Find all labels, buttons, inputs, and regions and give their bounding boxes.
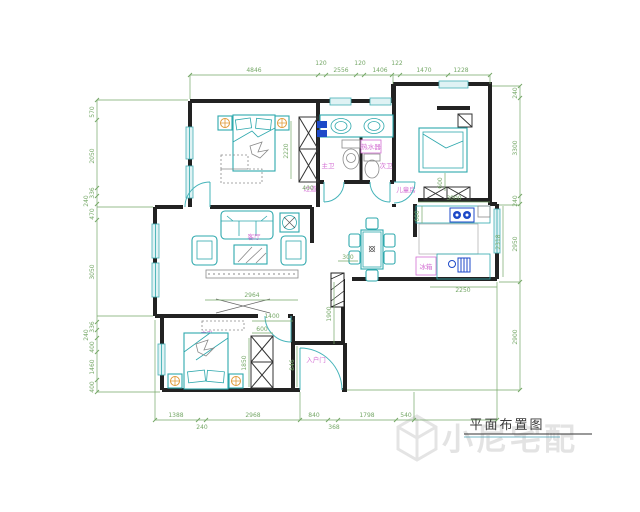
dim: 2964 — [244, 292, 259, 299]
entry-door-label: 入户门 — [306, 355, 326, 364]
dim: 240 — [512, 87, 519, 99]
second-bath-label: 次卫 — [380, 161, 394, 170]
sink — [449, 258, 471, 272]
dim: 1406 — [372, 67, 387, 74]
water-heater-label: 热水器 — [361, 142, 381, 151]
dim: 3050 — [89, 264, 96, 279]
dim: 1470 — [416, 67, 431, 74]
wardrobe — [299, 117, 318, 182]
dining-area — [349, 218, 395, 281]
entry-door-arc — [300, 348, 342, 390]
dim: 1228 — [453, 67, 468, 74]
dim: 1798 — [359, 412, 374, 419]
hallway: 过道 儿童房 — [304, 184, 416, 194]
dim: 3300 — [512, 140, 519, 155]
nightstand-lamp — [275, 116, 289, 130]
cube-logo-icon — [398, 416, 436, 460]
dim: 2968 — [245, 412, 260, 419]
water-heater-box: 热水器 — [361, 140, 381, 153]
fridge: 冰箱 — [416, 257, 436, 275]
dim: 368 — [328, 424, 340, 431]
dresser — [202, 321, 244, 330]
nightstand-lamp — [168, 374, 182, 388]
tv-cabinet — [206, 270, 298, 278]
dim: 120 — [315, 60, 327, 67]
armchair-left — [192, 236, 217, 265]
floor-marker — [216, 299, 270, 313]
dim: 2318 — [495, 234, 502, 249]
dim: 240 — [83, 195, 90, 207]
double-bed — [233, 115, 275, 171]
dim: 300 — [342, 254, 354, 261]
nightstand-lamp — [229, 374, 243, 388]
dim: 122 — [391, 60, 403, 67]
dim: 336 — [89, 187, 96, 199]
door-arc-bath-right — [370, 182, 390, 202]
kids-room-label: 儿童房 — [396, 185, 416, 194]
dim: 846 — [289, 359, 296, 371]
vanity-counter — [320, 115, 393, 137]
master-bath-label: 主卫 — [322, 161, 336, 170]
bedroom-top-left — [185, 115, 318, 207]
counter-return — [419, 224, 478, 254]
dim: 1388 — [168, 412, 183, 419]
dim: 840 — [308, 412, 320, 419]
kitchen: 冰箱 — [416, 206, 490, 279]
toilet-right — [364, 154, 380, 178]
dimension-chain-left: 570 2050 336 240 470 3050 336 240 400 14… — [83, 98, 188, 394]
dim: 1900 — [326, 306, 333, 321]
dim: 240 — [196, 424, 208, 431]
single-bed — [419, 128, 467, 172]
dim: 600 — [256, 326, 268, 333]
dining-table — [361, 230, 383, 269]
window-kidsroom-top — [439, 81, 468, 88]
door-arc-bath-left — [324, 182, 344, 202]
side-table — [280, 213, 299, 232]
dim: 240 — [512, 195, 519, 207]
fridge-label: 冰箱 — [420, 262, 434, 271]
dim: 336 — [89, 321, 96, 333]
dim: 400 — [89, 381, 96, 393]
dim: 1400 — [264, 313, 279, 320]
dim: 2220 — [283, 143, 290, 158]
dim: 2900 — [512, 329, 519, 344]
closet-column — [458, 114, 472, 127]
dim: 3000 — [446, 195, 461, 202]
wardrobe — [251, 336, 273, 388]
dim: 1850 — [241, 355, 248, 370]
dim: 570 — [89, 106, 96, 118]
dim: 2250 — [455, 287, 470, 294]
dimension-chain-top: 4846 120 2556 120 1406 122 1470 1228 — [188, 60, 492, 99]
dim: 2050 — [89, 148, 96, 163]
dim: 4846 — [246, 67, 261, 74]
master-bedroom: 主卧 — [168, 316, 291, 389]
stove — [450, 208, 474, 222]
dim: 1460 — [89, 359, 96, 374]
dim: 2556 — [333, 67, 348, 74]
coffee-table — [234, 245, 267, 264]
dim: 600 — [414, 210, 421, 222]
toilet-left — [342, 140, 360, 169]
shear-wall-hatched — [331, 273, 344, 307]
dim: 400 — [302, 185, 314, 192]
bathrooms: 热水器 主卫 次卫 — [317, 115, 393, 202]
double-bed — [184, 333, 228, 389]
floor-plan-canvas: 小尼宅配 — [0, 0, 640, 512]
dim: 470 — [89, 208, 96, 220]
window-bedroom1-left — [158, 344, 165, 375]
counter-top — [416, 206, 490, 223]
dim: 2950 — [512, 236, 519, 251]
drawing-title: 平面布置图 — [469, 418, 544, 433]
dim: 540 — [400, 412, 412, 419]
dim: 240 — [83, 329, 90, 341]
entry: 入户门 — [300, 348, 342, 390]
dim: 120 — [354, 60, 366, 67]
dim: 400 — [89, 341, 96, 353]
nightstand-lamp — [218, 116, 232, 130]
dim: 600 — [437, 177, 444, 189]
living-room-label: 客厅 — [248, 232, 262, 241]
corner-cabinet — [478, 206, 490, 217]
armchair-right — [281, 236, 306, 265]
